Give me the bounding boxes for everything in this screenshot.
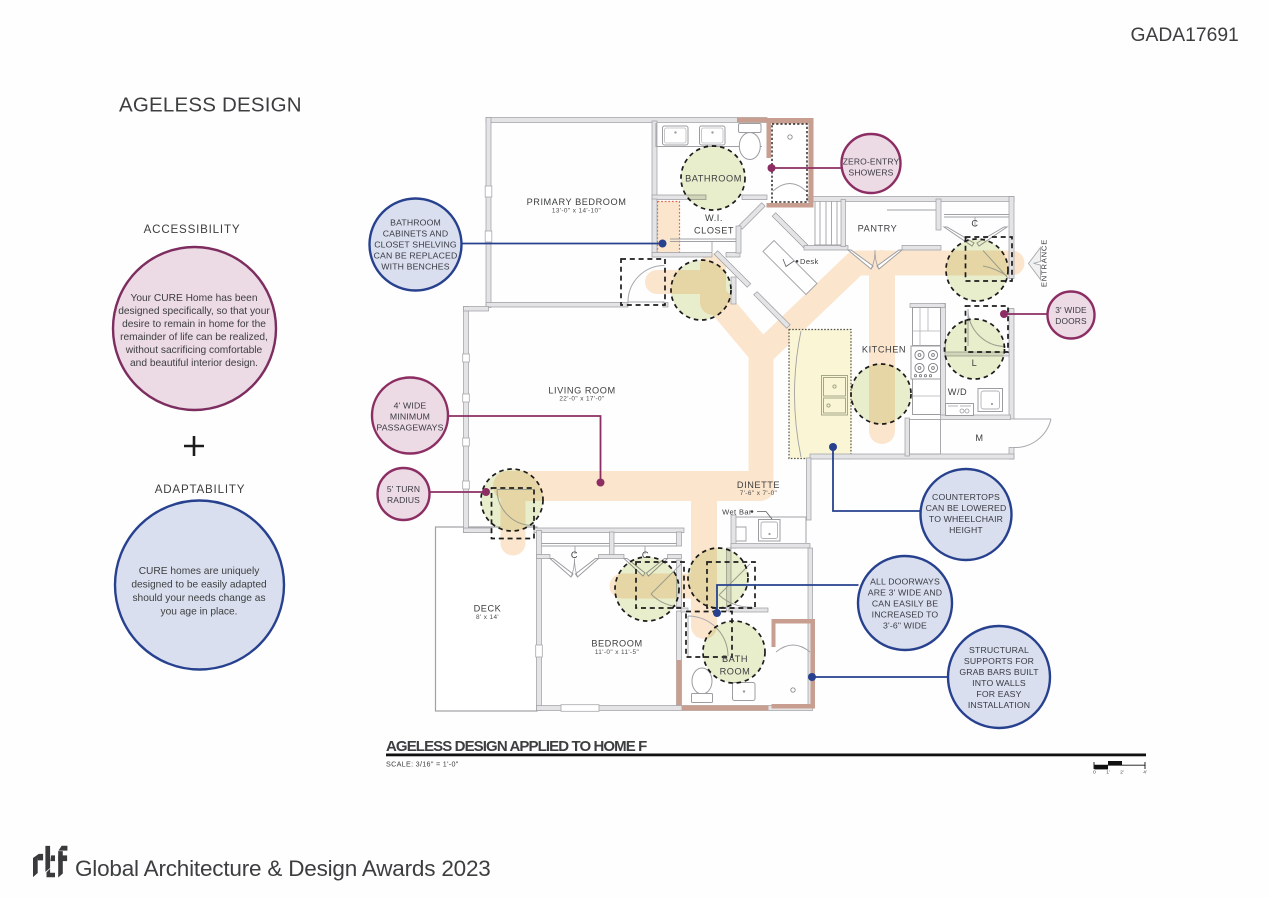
svg-text:SHOWERS: SHOWERS xyxy=(849,168,894,178)
svg-text:Your CURE Home has been: Your CURE Home has been xyxy=(130,293,257,304)
svg-text:ALL DOORWAYS: ALL DOORWAYS xyxy=(870,577,940,587)
svg-text:W/D: W/D xyxy=(948,387,968,397)
svg-text:FOR EASY: FOR EASY xyxy=(976,689,1021,699)
svg-text:DOORS: DOORS xyxy=(1055,316,1087,326)
svg-text:INTO WALLS: INTO WALLS xyxy=(972,678,1026,688)
svg-text:MINIMUM: MINIMUM xyxy=(390,412,430,422)
svg-text:3' WIDE: 3' WIDE xyxy=(1055,305,1087,315)
svg-text:4': 4' xyxy=(1143,770,1147,776)
svg-text:BEDROOM: BEDROOM xyxy=(591,639,642,649)
svg-text:7'-6" x 7'-0": 7'-6" x 7'-0" xyxy=(740,490,777,497)
svg-text:PRIMARY BEDROOM: PRIMARY BEDROOM xyxy=(527,197,627,207)
svg-text:W.I.: W.I. xyxy=(705,213,723,223)
svg-text:ROOM: ROOM xyxy=(720,667,751,677)
svg-text:CLOSET SHELVING: CLOSET SHELVING xyxy=(374,240,457,250)
svg-text:INCREASED TO: INCREASED TO xyxy=(872,610,939,620)
svg-text:without sacrificing comfortabl: without sacrificing comfortable xyxy=(125,345,263,356)
svg-text:TO WHEELCHAIR: TO WHEELCHAIR xyxy=(929,514,1003,524)
svg-text:PANTRY: PANTRY xyxy=(858,224,898,234)
svg-text:Global Architecture & Design A: Global Architecture & Design Awards 2023 xyxy=(75,856,491,881)
svg-text:AGELESS DESIGN: AGELESS DESIGN xyxy=(119,94,302,117)
svg-text:CLOSET: CLOSET xyxy=(694,226,734,236)
svg-text:LIVING ROOM: LIVING ROOM xyxy=(548,386,615,396)
svg-text:BATHROOM: BATHROOM xyxy=(685,174,742,184)
svg-text:designed specifically, so that: designed specifically, so that your xyxy=(118,306,270,317)
svg-text:HEIGHT: HEIGHT xyxy=(949,525,983,535)
svg-text:desire to remain in home for t: desire to remain in home for the xyxy=(122,319,266,330)
svg-text:GRAB BARS BUILT: GRAB BARS BUILT xyxy=(959,667,1039,677)
svg-text:designed to be easily adapted: designed to be easily adapted xyxy=(131,580,267,591)
svg-text:ENTRANCE: ENTRANCE xyxy=(1040,239,1049,287)
svg-text:you age in place.: you age in place. xyxy=(160,607,237,618)
svg-text:4' WIDE: 4' WIDE xyxy=(394,401,427,411)
svg-text:BATH: BATH xyxy=(722,654,748,664)
svg-text:C: C xyxy=(642,550,649,560)
svg-text:SUPPORTS FOR: SUPPORTS FOR xyxy=(964,656,1034,666)
svg-text:should your needs change as: should your needs change as xyxy=(132,593,265,604)
svg-text:WITH BENCHES: WITH BENCHES xyxy=(381,262,449,272)
svg-text:11'-0" x 11'-5": 11'-0" x 11'-5" xyxy=(595,649,639,656)
svg-text:CAN BE REPLACED: CAN BE REPLACED xyxy=(374,251,458,261)
svg-text:C: C xyxy=(571,550,578,560)
svg-text:COUNTERTOPS: COUNTERTOPS xyxy=(932,492,1000,502)
svg-text:5' TURN: 5' TURN xyxy=(387,484,420,494)
svg-text:GADA17691: GADA17691 xyxy=(1131,25,1239,46)
svg-text:Desk: Desk xyxy=(800,257,819,266)
svg-text:L: L xyxy=(972,358,978,368)
svg-text:AGELESS DESIGN APPLIED TO HOME: AGELESS DESIGN APPLIED TO HOME F xyxy=(386,738,647,755)
svg-text:Wet Bar: Wet Bar xyxy=(722,508,752,517)
svg-text:2': 2' xyxy=(1120,770,1124,776)
svg-text:22'-0" x 17'-0": 22'-0" x 17'-0" xyxy=(559,396,604,403)
svg-text:13'-0" x 14'-10": 13'-0" x 14'-10" xyxy=(552,208,601,215)
svg-text:0: 0 xyxy=(1093,770,1096,776)
svg-text:C: C xyxy=(971,219,978,229)
svg-text:DINETTE: DINETTE xyxy=(737,480,780,490)
svg-text:ADAPTABILITY: ADAPTABILITY xyxy=(155,483,246,496)
svg-text:ZERO-ENTRY: ZERO-ENTRY xyxy=(843,157,900,167)
svg-text:M: M xyxy=(975,433,983,443)
svg-text:INSTALLATION: INSTALLATION xyxy=(968,700,1030,710)
svg-text:DECK: DECK xyxy=(474,604,502,614)
svg-text:KITCHEN: KITCHEN xyxy=(862,345,906,355)
svg-text:RADIUS: RADIUS xyxy=(387,495,420,505)
svg-text:3'-6" WIDE: 3'-6" WIDE xyxy=(883,621,927,631)
svg-text:CURE homes are uniquely: CURE homes are uniquely xyxy=(139,566,261,577)
svg-text:PASSAGEWAYS: PASSAGEWAYS xyxy=(376,423,443,433)
svg-text:ARE 3' WIDE AND: ARE 3' WIDE AND xyxy=(868,588,942,598)
svg-text:BATHROOM: BATHROOM xyxy=(390,218,441,228)
svg-text:and beautiful interior design.: and beautiful interior design. xyxy=(130,358,258,369)
svg-text:remainder of life can be reali: remainder of life can be realized, xyxy=(120,332,268,343)
svg-text:1': 1' xyxy=(1106,770,1110,776)
svg-text:CAN BE LOWERED: CAN BE LOWERED xyxy=(926,503,1007,513)
svg-text:ACCESSIBILITY: ACCESSIBILITY xyxy=(144,223,241,236)
svg-text:CAN EASILY BE: CAN EASILY BE xyxy=(872,599,938,609)
svg-text:8' x 14': 8' x 14' xyxy=(476,614,499,621)
svg-text:STRUCTURAL: STRUCTURAL xyxy=(969,645,1029,655)
svg-text:CABINETS AND: CABINETS AND xyxy=(383,229,449,239)
svg-text:SCALE: 3/16" = 1'-0": SCALE: 3/16" = 1'-0" xyxy=(386,760,459,769)
